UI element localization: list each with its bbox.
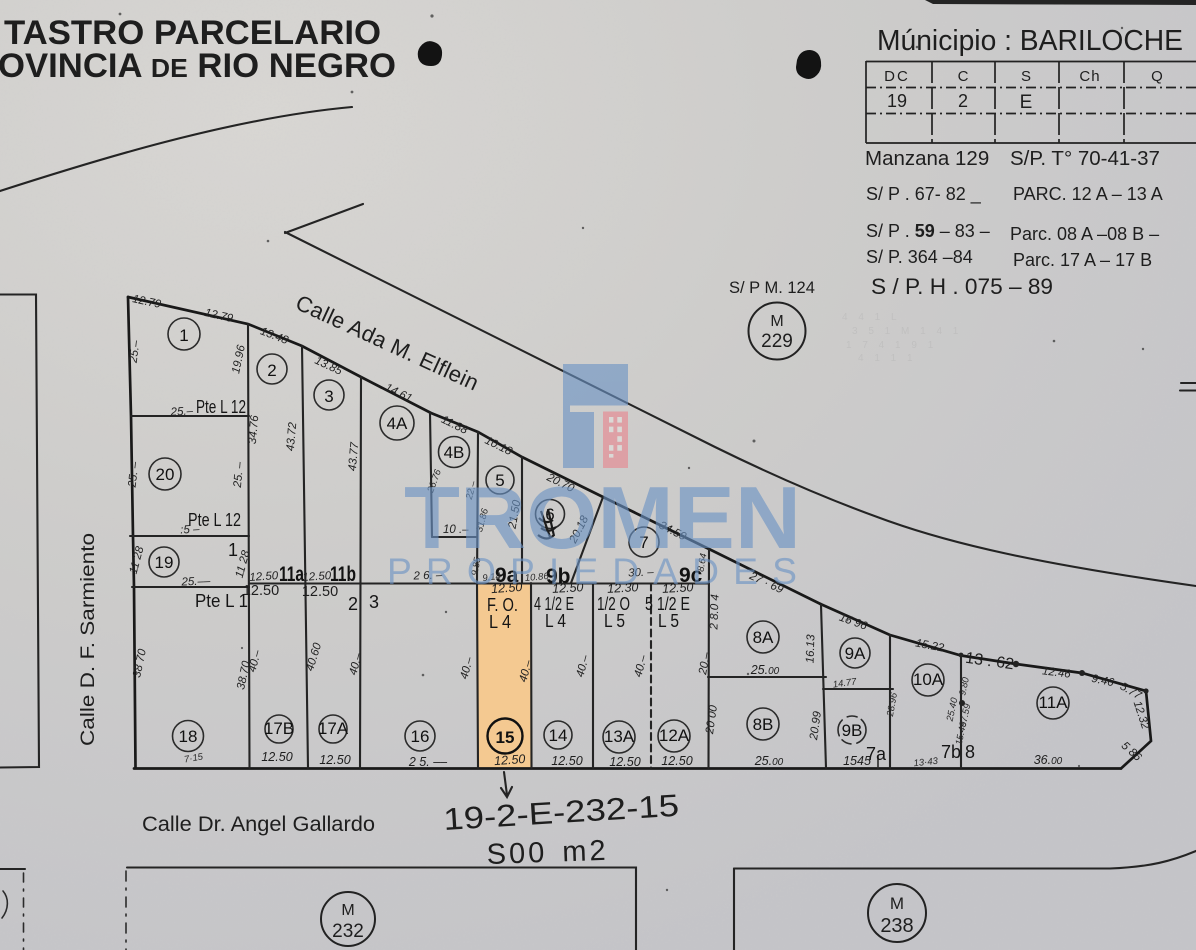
svg-text:17A: 17A [318, 719, 349, 738]
svg-text:S/ P . 67- 82 _: S/ P . 67- 82 _ [866, 184, 982, 205]
svg-text:OVINCIA DE RIO NEGRO: OVINCIA DE RIO NEGRO [0, 47, 396, 85]
svg-text:Manzana 129: Manzana 129 [865, 147, 989, 170]
svg-text:25.–: 25.– [169, 405, 194, 418]
svg-text:4B: 4B [444, 443, 465, 462]
svg-text:PROPIEDADES: PROPIEDADES [387, 551, 811, 592]
svg-text:25.00: 25.00 [750, 663, 780, 677]
svg-text:16: 16 [411, 727, 430, 746]
svg-text:S00 m2: S00 m2 [486, 835, 609, 871]
svg-text:1 7 4 1 9 1: 1 7 4 1 9 1 [846, 340, 937, 351]
svg-text:2 5. ––: 2 5. –– [408, 755, 448, 769]
svg-text:238: 238 [880, 915, 913, 937]
svg-text:1545: 1545 [843, 754, 871, 768]
svg-text:18: 18 [179, 727, 198, 746]
svg-text:11a: 11a [279, 563, 304, 586]
svg-text:Parc. 08 A –08 B –: Parc. 08 A –08 B – [1010, 224, 1159, 244]
svg-text:12.50: 12.50 [319, 753, 350, 767]
svg-text:16.13: 16.13 [805, 634, 818, 664]
svg-text:M: M [341, 902, 354, 919]
svg-text:17B: 17B [264, 719, 294, 738]
svg-text:Múnicipio : BARILOCHE: Múnicipio : BARILOCHE [877, 25, 1183, 57]
svg-text:11b: 11b [330, 563, 356, 586]
svg-text:2: 2 [267, 361, 276, 380]
svg-text:20: 20 [156, 465, 175, 484]
svg-text:12.50: 12.50 [302, 584, 338, 600]
svg-text:Pte L 12: Pte L 12 [196, 397, 246, 417]
svg-text:8: 8 [965, 742, 975, 762]
svg-text:12.50: 12.50 [261, 750, 292, 764]
svg-text:S/ P M. 124: S/ P M. 124 [729, 279, 815, 297]
svg-text:L 4: L 4 [545, 611, 566, 631]
svg-text:8B: 8B [753, 715, 774, 734]
svg-text:12.50: 12.50 [661, 754, 692, 768]
svg-text:12A: 12A [659, 726, 690, 745]
svg-text:12.50: 12.50 [249, 570, 279, 584]
svg-text:Calle D. F. Sarmiento: Calle D. F. Sarmiento [77, 533, 99, 746]
svg-text:9B: 9B [842, 721, 863, 740]
svg-text:M: M [890, 894, 904, 913]
svg-text:43.72: 43.72 [285, 421, 300, 451]
svg-text:12.50: 12.50 [243, 583, 279, 599]
svg-text:12.50: 12.50 [609, 755, 640, 769]
svg-text:2 8.0 4: 2 8.0 4 [708, 594, 721, 631]
svg-text:E: E [1020, 92, 1033, 113]
svg-text:34.76: 34.76 [247, 414, 262, 444]
svg-text:13A: 13A [604, 727, 635, 746]
svg-text:4 1 1 1: 4 1 1 1 [858, 353, 917, 364]
svg-text:1: 1 [179, 326, 188, 345]
svg-text:19: 19 [887, 91, 907, 111]
svg-text:43.77: 43.77 [347, 441, 362, 471]
svg-text:S: S [1021, 68, 1031, 85]
svg-text:DC: DC [884, 68, 910, 85]
svg-text:12.50: 12.50 [302, 570, 332, 584]
svg-text:Pte L 1: Pte L 1 [195, 591, 248, 611]
svg-text:11A: 11A [1039, 693, 1069, 712]
svg-text:C: C [958, 68, 969, 85]
svg-text:25. –: 25. – [232, 461, 246, 489]
svg-text:232: 232 [332, 921, 364, 942]
svg-text:3 5 1 M 1 4 1: 3 5 1 M 1 4 1 [852, 326, 962, 337]
svg-text:3: 3 [324, 387, 333, 406]
svg-text:4 4 1 L: 4 4 1 L [842, 312, 901, 323]
svg-text:3: 3 [369, 592, 379, 612]
svg-text:19: 19 [155, 553, 174, 572]
svg-text:12.50: 12.50 [551, 754, 582, 768]
svg-text:15: 15 [496, 728, 515, 747]
svg-text:Q: Q [1151, 68, 1163, 85]
svg-text:10A: 10A [913, 670, 944, 689]
svg-text:Parc. 17 A – 17 B: Parc. 17 A – 17 B [1013, 250, 1152, 270]
svg-text::5 –: :5 – [180, 523, 200, 536]
svg-text:Ch: Ch [1079, 68, 1100, 85]
svg-text:S/ P . 59 – 83 –: S/ P . 59 – 83 – [866, 221, 990, 241]
svg-text:L 5: L 5 [658, 611, 679, 631]
svg-text:229: 229 [761, 331, 793, 352]
svg-text:12.50: 12.50 [494, 752, 526, 768]
svg-text:25.––: 25.–– [180, 575, 211, 588]
svg-text:S/ P. 364 –84: S/ P. 364 –84 [866, 247, 973, 267]
svg-text:PARC. 12 A – 13 A: PARC. 12 A – 13 A [1013, 184, 1163, 204]
svg-text:2: 2 [958, 91, 968, 111]
svg-text:2: 2 [348, 594, 358, 614]
svg-text:14: 14 [549, 726, 568, 745]
svg-text:M: M [770, 313, 783, 330]
svg-text:L 4: L 4 [489, 612, 511, 632]
svg-text:25.00: 25.00 [754, 754, 784, 768]
svg-text:L 5: L 5 [604, 611, 625, 631]
svg-text:S/P. T° 70-41-37: S/P. T° 70-41-37 [1010, 147, 1160, 170]
svg-text:1: 1 [228, 540, 238, 560]
svg-text:4A: 4A [387, 414, 408, 433]
svg-text:36.00: 36.00 [1034, 753, 1063, 767]
svg-text:S / P. H . 075 – 89: S / P. H . 075 – 89 [871, 274, 1053, 299]
svg-text:8A: 8A [753, 628, 774, 647]
svg-text:Calle Dr. Angel Gallardo: Calle Dr. Angel Gallardo [142, 813, 375, 836]
svg-text:9A: 9A [845, 644, 866, 663]
